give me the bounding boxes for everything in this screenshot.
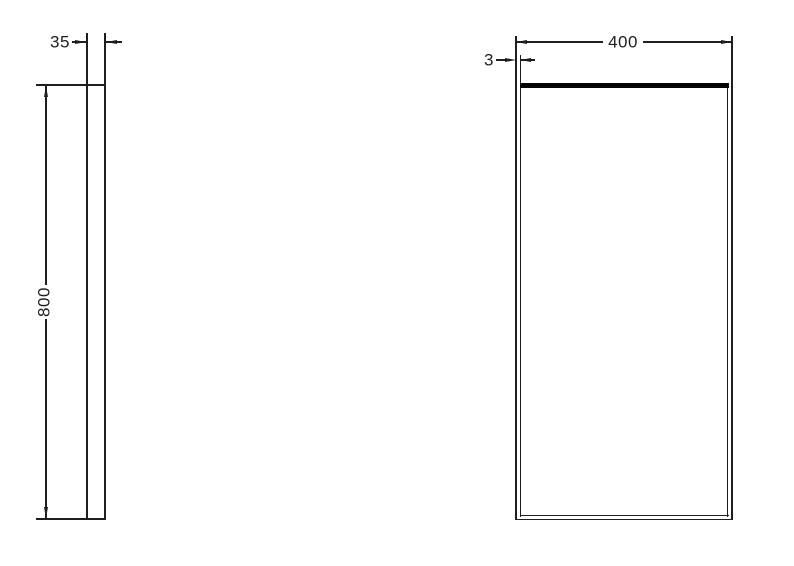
width-dim-arrow-left (516, 40, 527, 44)
height-dim-line-upper (45, 86, 46, 285)
height-dim-arrow-down (44, 507, 48, 518)
edge-dim-tail-line (520, 59, 535, 60)
front-view-inner-bottom-line (520, 515, 729, 516)
width-dim-line-left (516, 41, 603, 42)
height-dimension-label: 800 (36, 287, 53, 317)
height-dim-arrow-up (44, 86, 48, 97)
front-view-inner-left-line (520, 55, 521, 517)
front-view-outer-bottom-line (515, 519, 733, 521)
depth-dim-tail-line (106, 41, 123, 42)
side-view-right-face-line (104, 33, 106, 519)
edge-dimension-label: 3 (484, 52, 494, 69)
front-view-inner-right-line (727, 83, 728, 517)
depth-dimension-label: 35 (50, 34, 70, 51)
width-dimension-label: 400 (608, 33, 638, 50)
front-view-outer-left-line (515, 36, 517, 520)
width-dim-line-right (643, 41, 732, 42)
drawing-canvas: 35 800 400 3 (0, 0, 794, 566)
side-view-left-face-line (86, 33, 88, 519)
front-view-outer-right-line (731, 36, 733, 520)
edge-dim-arrow-right (505, 58, 516, 62)
width-dim-arrow-right (721, 40, 732, 44)
depth-dim-arrow-right (75, 40, 86, 44)
height-dim-line-lower (45, 319, 46, 518)
front-view-top-edge-thick-line (520, 83, 729, 88)
side-view-bottom-edge-line (36, 518, 106, 520)
